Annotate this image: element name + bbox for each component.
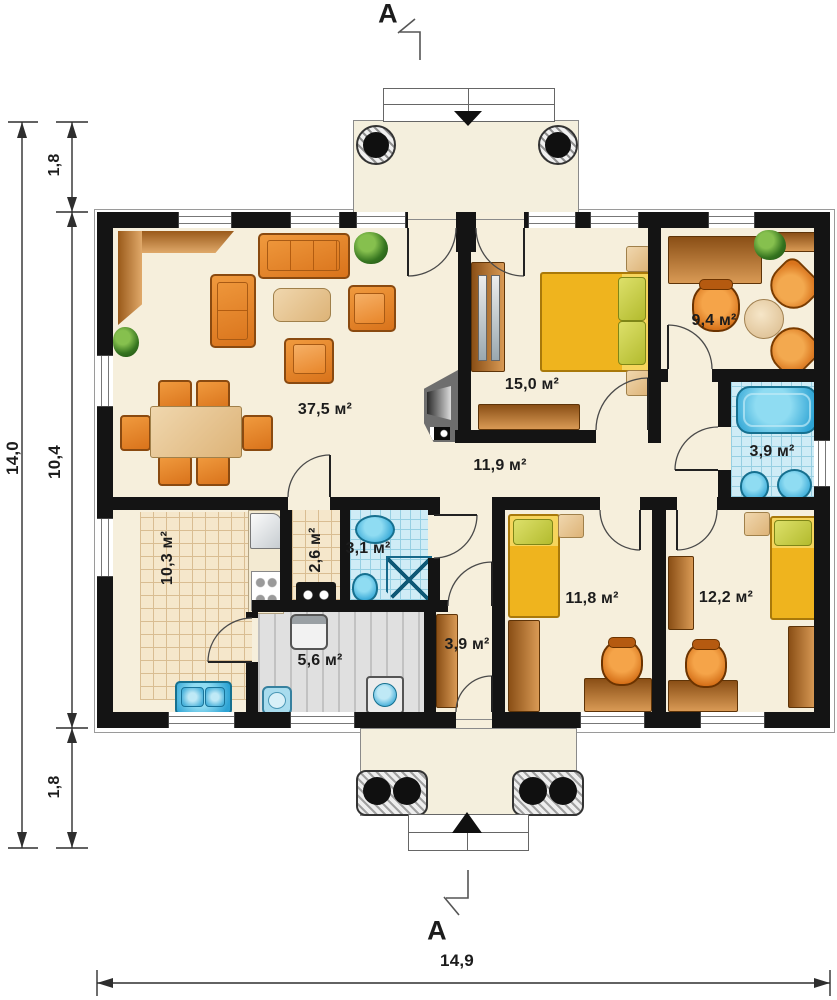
porch-column-right: [538, 125, 578, 165]
section-mark-bottom: [446, 870, 468, 898]
dining-table: [150, 406, 242, 458]
section-mark-top: [400, 32, 420, 60]
floor-drain: [262, 686, 292, 715]
room-label-kitchen: 10,3 м²: [159, 531, 177, 585]
office-chair-bedroom-three: [685, 642, 727, 688]
kitchen-floor-tiles: [140, 512, 252, 700]
wall-kitchen-utility-a: [246, 612, 258, 618]
room-label-bedroom-two: 11,8 м²: [565, 590, 618, 608]
wall-hall-south-b: [330, 497, 440, 510]
room-label-living: 37,5 м²: [298, 401, 352, 419]
window-terrace-sidelight-right: [528, 212, 576, 228]
window-living-top-1: [178, 212, 232, 228]
wall-study-south-b: [712, 369, 830, 382]
dining-chair: [242, 415, 273, 451]
wall-bedroom-south: [455, 430, 596, 443]
dresser-main-bedroom: [478, 404, 580, 430]
desk-study: [668, 236, 762, 284]
nightstand-bedroom-three: [744, 512, 770, 536]
window-bedroom-three-bottom: [700, 712, 765, 728]
room-label-hallway: 11,9 м²: [473, 457, 526, 475]
sofa-three-seat: [258, 233, 350, 279]
section-label-bottom: A: [427, 916, 447, 947]
terrace-door-gap-right: [476, 212, 524, 228]
dim-label-left-total: 14,0: [3, 441, 23, 475]
armchair-right: [348, 285, 396, 332]
bathtub: [736, 386, 818, 434]
pillow: [618, 277, 646, 321]
wall-bath-main-west-a: [718, 382, 731, 427]
pillow: [513, 519, 553, 545]
corner-shower: [386, 556, 432, 604]
armchair-bottom: [284, 338, 334, 384]
wardrobe-main-bedroom: [471, 262, 505, 372]
stairs-top: [383, 88, 555, 122]
section-label-top: A: [378, 0, 398, 30]
wall-utility-entry: [424, 612, 436, 712]
dining-chair: [196, 455, 230, 486]
dim-label-segment-top: 1,8: [46, 154, 64, 177]
washing-machine: [366, 676, 404, 714]
wall-living-bedroom: [458, 228, 471, 443]
nightstand-bedroom-two: [558, 514, 584, 538]
wall-bath-main-west-b: [718, 470, 731, 497]
terrace-door-gap-left: [408, 212, 456, 228]
wall-kitchen-utility-b: [246, 662, 258, 712]
round-side-table: [744, 299, 784, 339]
window-kitchen-left: [97, 518, 113, 577]
window-terrace-sidelight-left: [356, 212, 406, 228]
room-label-pantry: 2,6 м²: [307, 527, 325, 572]
wall-study-south-a: [648, 369, 668, 382]
window-study-top: [708, 212, 755, 228]
window-bath-main-right: [814, 440, 830, 487]
wardrobe-entry-hall: [436, 614, 458, 708]
wall-bedroom-study: [648, 228, 661, 443]
floor-plan: 37,5 м² 15,0 м² 9,4 м² 3,9 м² 11,9 м² 10…: [0, 0, 837, 1000]
plant-study: [754, 230, 786, 260]
window-utility-bottom: [290, 712, 355, 728]
window-bedroom-main-top: [590, 212, 639, 228]
room-label-entry-hall: 3,9 м²: [444, 636, 489, 654]
nightstand: [626, 370, 650, 396]
entry-door-gap: [456, 712, 492, 728]
dim-label-bottom-total: 14,9: [440, 951, 474, 971]
wall-hall-south-c: [492, 497, 600, 510]
wall-bath-small-east-b: [428, 558, 440, 600]
sofa-two-seat: [210, 274, 256, 348]
room-label-bedroom-three: 12,2 м²: [699, 589, 753, 607]
room-label-utility: 5,6 м²: [297, 652, 342, 670]
window-bedroom-two-bottom: [580, 712, 645, 728]
coffee-table: [273, 288, 331, 322]
wall-bedroom-two-three: [652, 510, 666, 712]
porch-column-left: [356, 125, 396, 165]
room-label-study: 9,4 м²: [691, 312, 736, 330]
room-label-bedroom-main: 15,0 м²: [505, 376, 559, 394]
section-mark-bottom-tick: [444, 897, 459, 915]
dining-chair: [158, 455, 192, 486]
office-chair-bedroom-two: [601, 640, 643, 686]
wall-exterior-left: [97, 212, 113, 728]
fridge: [250, 513, 282, 549]
section-mark-top-tick: [398, 19, 415, 33]
wall-utility-north: [252, 600, 448, 612]
boiler: [290, 614, 328, 650]
dim-label-segment-middle: 10,4: [45, 445, 65, 479]
plant-left-wall: [113, 327, 139, 357]
wall-hall-south-a: [113, 497, 288, 510]
dresser-bedroom-three: [788, 626, 816, 708]
wall-kitchen-pantry: [280, 510, 292, 600]
wall-hall-south-d: [640, 497, 677, 510]
room-label-bathroom-main: 3,9 м²: [749, 443, 794, 461]
wardrobe-bedroom-two: [508, 620, 540, 712]
plant-living: [354, 232, 388, 264]
kitchen-sink: [175, 681, 232, 715]
window-living-top-2: [290, 212, 340, 228]
pillow: [774, 520, 812, 546]
wall-entry-bedroom-two: [492, 510, 505, 712]
column-pair-left: [356, 770, 428, 816]
nightstand: [626, 246, 650, 272]
dining-chair: [120, 415, 151, 451]
window-living-left: [97, 355, 113, 407]
pillow: [618, 321, 646, 365]
wardrobe-bedroom-three: [668, 556, 694, 630]
column-pair-right: [512, 770, 584, 816]
dim-label-segment-bottom: 1,8: [46, 776, 64, 799]
wall-hall-south-e: [717, 497, 830, 510]
window-kitchen-bottom: [168, 712, 235, 728]
toilet-small-bath: [352, 573, 378, 602]
room-label-bathroom-small: 3,1 м²: [345, 540, 390, 558]
wall-bath-small-east-a: [428, 510, 440, 515]
stairs-bottom: [408, 814, 529, 851]
